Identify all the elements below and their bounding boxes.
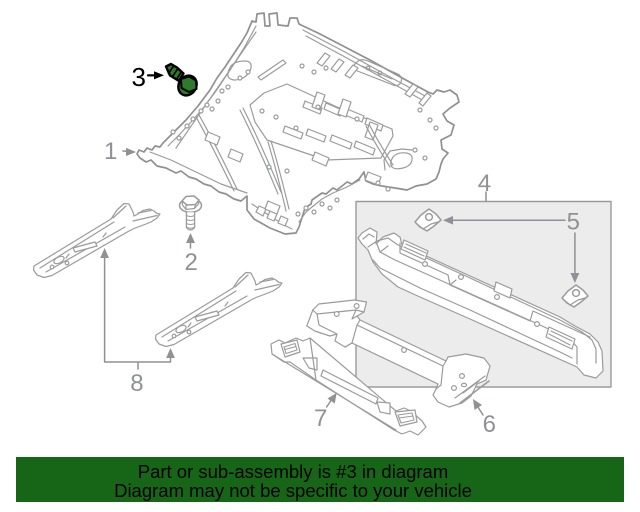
svg-text:1: 1 [104,138,117,165]
svg-text:5: 5 [567,209,580,236]
svg-text:8: 8 [130,370,143,397]
svg-text:2: 2 [185,249,198,276]
svg-text:7: 7 [314,405,327,432]
svg-text:3: 3 [132,62,146,92]
svg-text:4: 4 [478,170,491,197]
svg-text:6: 6 [483,411,496,438]
